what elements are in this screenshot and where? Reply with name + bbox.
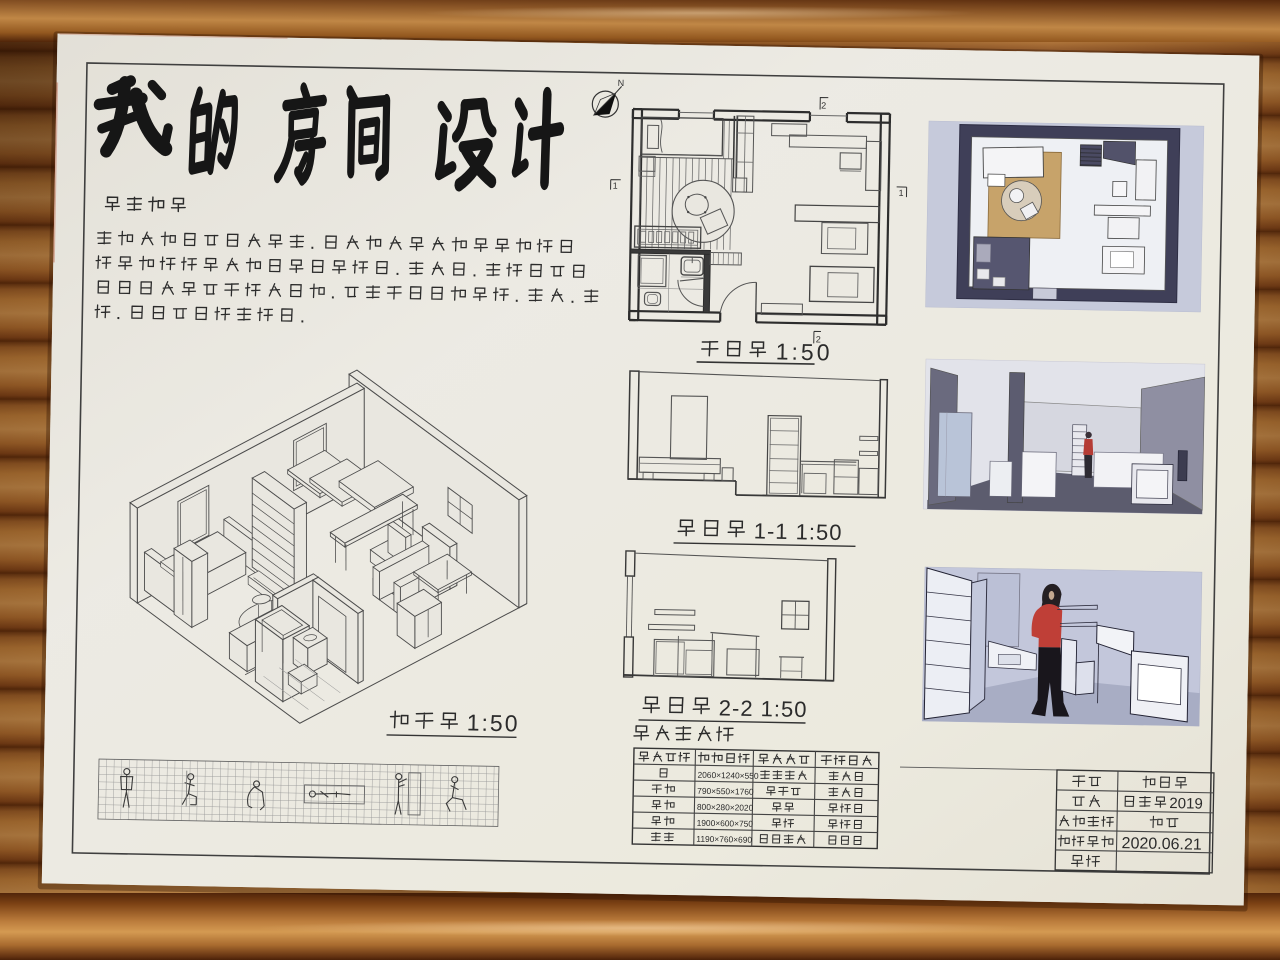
svg-text:2-2 1:50: 2-2 1:50 xyxy=(719,695,808,722)
svg-text:.: . xyxy=(570,286,576,308)
svg-text:1: 1 xyxy=(613,181,618,191)
svg-text:1: 1 xyxy=(898,188,903,198)
svg-text:.: . xyxy=(116,302,122,324)
svg-text:.: . xyxy=(300,305,306,327)
svg-text:N: N xyxy=(618,78,625,88)
svg-text:1900×600×750: 1900×600×750 xyxy=(697,818,754,829)
svg-text:2019: 2019 xyxy=(1169,795,1203,813)
svg-text:2020.06.21: 2020.06.21 xyxy=(1121,835,1201,853)
svg-text:1:50: 1:50 xyxy=(467,709,520,736)
svg-text:800×280×2020: 800×280×2020 xyxy=(697,802,754,813)
svg-text:790×550×1760: 790×550×1760 xyxy=(697,786,754,797)
svg-text:.: . xyxy=(330,281,336,303)
svg-text:1-1 1:50: 1-1 1:50 xyxy=(754,518,843,545)
svg-text:1190×760×690: 1190×760×690 xyxy=(696,834,752,845)
svg-text:2: 2 xyxy=(821,100,826,110)
svg-text:.: . xyxy=(310,232,316,254)
svg-text:.: . xyxy=(472,259,478,281)
svg-text:2060×1240×550: 2060×1240×550 xyxy=(697,770,759,781)
svg-text:1:50: 1:50 xyxy=(776,338,833,365)
svg-text:.: . xyxy=(514,285,520,307)
svg-text:.: . xyxy=(395,258,401,280)
